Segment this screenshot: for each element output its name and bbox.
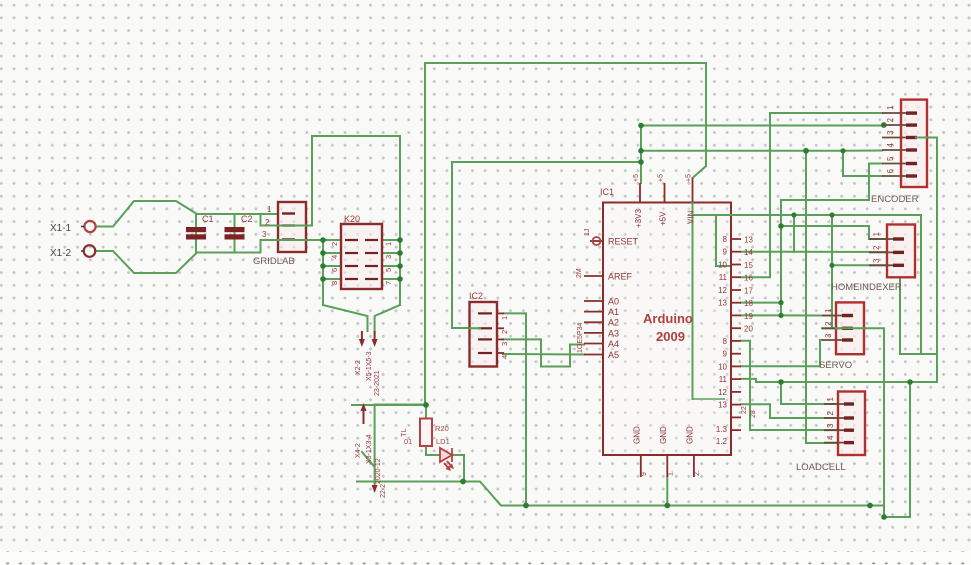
svg-text:TL: TL (399, 428, 408, 437)
svg-text:X3-1X3-4: X3-1X3-4 (366, 434, 373, 464)
svg-text:+5V: +5V (659, 211, 668, 226)
svg-text:1: 1 (384, 242, 393, 246)
svg-text:12: 12 (718, 388, 727, 397)
svg-text:3: 3 (500, 342, 509, 346)
svg-text:1.2: 1.2 (716, 437, 728, 446)
svg-text:IC1: IC1 (600, 187, 614, 197)
svg-text:1: 1 (872, 232, 881, 237)
svg-text:GND: GND (686, 426, 695, 444)
svg-text:1: 1 (267, 205, 272, 214)
svg-text:10: 10 (718, 362, 727, 371)
svg-text:8: 8 (723, 235, 728, 244)
svg-text:+5: +5 (658, 174, 665, 182)
svg-text:13: 13 (744, 236, 753, 245)
svg-text:3: 3 (886, 130, 895, 135)
svg-text:2: 2 (500, 330, 509, 334)
svg-text:X2-2: X2-2 (355, 360, 362, 375)
svg-text:A5: A5 (608, 350, 619, 360)
svg-text:23-2021: 23-2021 (374, 370, 381, 396)
svg-text:20: 20 (744, 325, 753, 334)
svg-text:A1: A1 (608, 307, 619, 317)
svg-text:2: 2 (826, 411, 835, 416)
svg-text:16: 16 (744, 274, 753, 283)
svg-text:X1-1: X1-1 (50, 223, 72, 234)
svg-text:A2: A2 (608, 318, 619, 328)
svg-text:3: 3 (872, 258, 881, 263)
svg-text:4: 4 (826, 435, 835, 440)
svg-text:9: 9 (641, 472, 648, 476)
svg-text:9: 9 (723, 248, 728, 257)
svg-text:X5-1X5-3: X5-1X5-3 (366, 351, 373, 381)
svg-text:2.: 2. (694, 470, 701, 476)
svg-text:1.: 1. (668, 470, 675, 476)
svg-text:1OE5P34: 1OE5P34 (577, 323, 584, 353)
svg-text:AREF: AREF (608, 272, 633, 282)
svg-text:17: 17 (744, 287, 753, 296)
svg-text:Arduino: Arduino (643, 311, 693, 326)
svg-text:6: 6 (886, 169, 895, 174)
svg-text:1: 1 (824, 308, 833, 313)
svg-text:3: 3 (826, 423, 835, 428)
svg-text:2: 2 (824, 321, 833, 326)
svg-text:5: 5 (384, 268, 393, 272)
svg-text:R20: R20 (435, 424, 449, 433)
svg-text:+5: +5 (633, 174, 640, 182)
svg-text:6: 6 (330, 268, 339, 272)
svg-text:10: 10 (718, 261, 727, 270)
svg-text:15: 15 (744, 261, 753, 270)
svg-text:A4: A4 (608, 339, 619, 349)
svg-text:GND: GND (659, 426, 668, 444)
svg-text:2: 2 (872, 245, 881, 250)
svg-text:8: 8 (723, 337, 728, 346)
svg-text:3: 3 (262, 230, 267, 239)
svg-text:X4-2: X4-2 (355, 443, 362, 458)
svg-text:4: 4 (886, 143, 895, 148)
svg-text:11: 11 (719, 273, 728, 282)
svg-text:LD1: LD1 (436, 437, 450, 446)
svg-text:19: 19 (744, 312, 753, 321)
svg-text:2: 2 (886, 118, 895, 123)
svg-text:1: 1 (886, 105, 895, 110)
svg-text:12: 12 (718, 286, 727, 295)
svg-text:1J: 1J (584, 229, 591, 236)
svg-text:2M: 2M (576, 268, 583, 278)
svg-text:13: 13 (718, 401, 727, 410)
svg-text:C2: C2 (241, 214, 253, 224)
svg-text:X1-2: X1-2 (50, 248, 72, 259)
svg-text:RESET: RESET (608, 237, 639, 247)
svg-text:3: 3 (384, 255, 393, 259)
svg-text:2020-12: 2020-12 (375, 458, 382, 484)
svg-text:7: 7 (384, 281, 393, 285)
svg-text:13: 13 (718, 299, 727, 308)
svg-text:+5: +5 (686, 174, 693, 182)
svg-text:8: 8 (330, 281, 339, 285)
svg-text:SERVO: SERVO (819, 360, 852, 371)
svg-text:2009: 2009 (656, 329, 685, 344)
svg-text:1.3: 1.3 (716, 425, 728, 434)
svg-text:ENCODER: ENCODER (871, 194, 919, 205)
svg-text:1: 1 (500, 316, 509, 320)
svg-text:C1: C1 (202, 214, 214, 224)
svg-text:IC2: IC2 (469, 291, 483, 301)
svg-text:3: 3 (824, 333, 833, 338)
svg-text:GRIDLAB: GRIDLAB (253, 256, 295, 267)
svg-text:A0: A0 (608, 297, 619, 307)
svg-text:23: 23 (750, 410, 757, 418)
svg-text:VIN: VIN (687, 210, 696, 224)
svg-text:2: 2 (330, 242, 339, 246)
svg-text:K20: K20 (344, 214, 360, 224)
svg-text:22-2: 22-2 (380, 484, 387, 498)
svg-text:5: 5 (886, 156, 895, 161)
svg-text:18: 18 (744, 299, 753, 308)
svg-text:11: 11 (719, 375, 728, 384)
svg-text:4: 4 (500, 355, 509, 359)
svg-text:GND: GND (633, 426, 642, 444)
svg-text:LOADCELL: LOADCELL (796, 462, 846, 473)
svg-text:HOMEINDEXER: HOMEINDEXER (831, 282, 902, 293)
svg-text:+3V3: +3V3 (634, 209, 643, 228)
svg-text:2: 2 (265, 218, 270, 227)
svg-text:4: 4 (330, 255, 339, 259)
svg-text:22: 22 (741, 406, 748, 414)
svg-text:14: 14 (744, 248, 753, 257)
svg-text:1: 1 (826, 397, 835, 402)
svg-text:9: 9 (723, 350, 728, 359)
svg-text:01: 01 (404, 437, 412, 446)
svg-text:A3: A3 (608, 328, 619, 338)
